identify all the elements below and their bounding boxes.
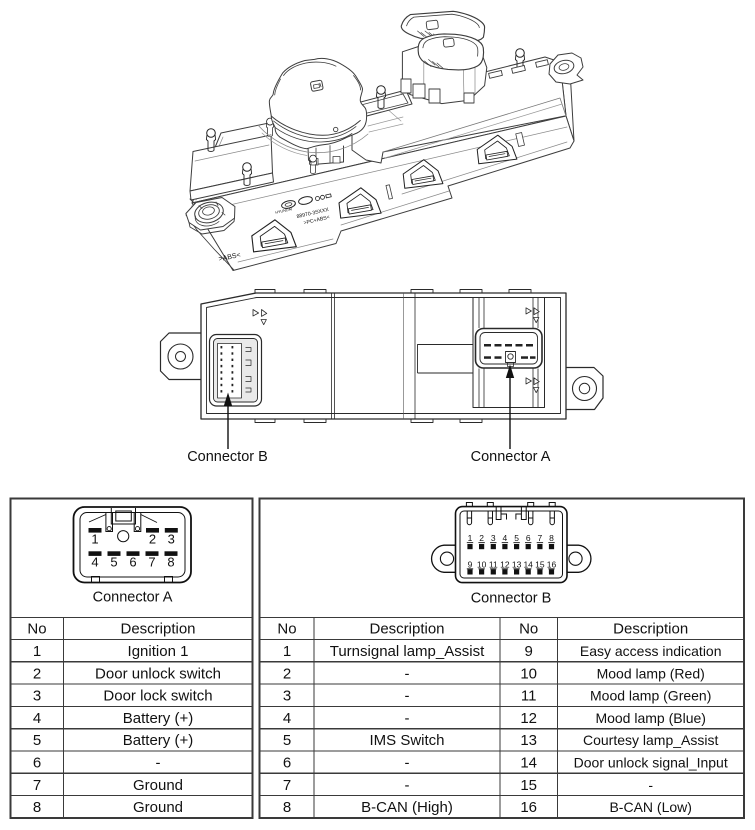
svg-text:Mood lamp (Red): Mood lamp (Red) (597, 665, 705, 681)
svg-text:10: 10 (520, 665, 537, 682)
svg-text:-: - (156, 755, 161, 772)
svg-text:13: 13 (520, 732, 537, 749)
svg-text:11: 11 (489, 560, 498, 570)
svg-text:8: 8 (167, 555, 174, 570)
svg-text:Connector B: Connector B (471, 591, 552, 607)
svg-text:Connector A: Connector A (471, 449, 551, 465)
svg-text:No: No (277, 621, 296, 638)
svg-text:4: 4 (33, 710, 41, 727)
svg-text:-: - (405, 688, 410, 705)
svg-text:Door unlock switch: Door unlock switch (95, 665, 221, 682)
svg-text:15: 15 (520, 777, 537, 794)
svg-text:6: 6 (129, 555, 136, 570)
svg-text:5: 5 (33, 732, 41, 749)
svg-text:4: 4 (283, 710, 291, 727)
svg-text:12: 12 (520, 710, 537, 727)
svg-text:14: 14 (523, 560, 533, 570)
svg-text:-: - (405, 710, 410, 727)
svg-text:9: 9 (525, 643, 533, 660)
svg-text:2: 2 (283, 665, 291, 682)
svg-text:6: 6 (33, 755, 41, 772)
svg-text:1: 1 (283, 643, 291, 660)
svg-text:Door unlock signal_Input: Door unlock signal_Input (574, 755, 728, 771)
svg-text:Connector B: Connector B (187, 449, 268, 465)
svg-text:Easy access indication: Easy access indication (580, 643, 722, 659)
svg-text:B-CAN (High): B-CAN (High) (361, 799, 453, 816)
svg-text:Connector A: Connector A (93, 590, 173, 606)
svg-text:-: - (405, 755, 410, 772)
svg-text:8: 8 (283, 799, 291, 816)
svg-text:6: 6 (526, 533, 531, 543)
svg-text:B-CAN (Low): B-CAN (Low) (609, 799, 691, 815)
svg-text:Ignition 1: Ignition 1 (128, 643, 189, 660)
svg-text:Door lock switch: Door lock switch (103, 688, 212, 705)
svg-text:Description: Description (120, 621, 195, 638)
svg-text:Description: Description (369, 621, 444, 638)
svg-text:Battery (+): Battery (+) (123, 732, 193, 749)
svg-text:7: 7 (538, 533, 543, 543)
svg-text:4: 4 (503, 533, 508, 543)
svg-text:16: 16 (520, 799, 537, 816)
svg-text:5: 5 (514, 533, 519, 543)
svg-text:1: 1 (91, 532, 98, 547)
svg-text:12: 12 (500, 560, 510, 570)
svg-text:13: 13 (512, 560, 522, 570)
svg-text:7: 7 (148, 555, 155, 570)
svg-text:4: 4 (91, 555, 98, 570)
svg-text:Mood lamp (Blue): Mood lamp (Blue) (595, 710, 706, 726)
svg-text:Battery (+): Battery (+) (123, 710, 193, 727)
svg-text:-: - (405, 665, 410, 682)
svg-text:Courtesy lamp_Assist: Courtesy lamp_Assist (583, 732, 718, 748)
svg-text:9: 9 (468, 560, 473, 570)
svg-text:IMS Switch: IMS Switch (369, 732, 444, 749)
svg-text:3: 3 (168, 532, 175, 547)
svg-text:Ground: Ground (133, 777, 183, 794)
svg-text:3: 3 (491, 533, 496, 543)
svg-text:10: 10 (477, 560, 487, 570)
svg-text:3: 3 (283, 688, 291, 705)
svg-text:11: 11 (521, 688, 537, 705)
svg-text:16: 16 (547, 560, 557, 570)
svg-text:8: 8 (549, 533, 554, 543)
svg-text:Turnsignal lamp_Assist: Turnsignal lamp_Assist (330, 643, 485, 660)
svg-text:14: 14 (520, 755, 537, 772)
svg-text:-: - (648, 777, 653, 793)
svg-text:7: 7 (33, 777, 41, 794)
svg-text:No: No (519, 621, 538, 638)
svg-text:5: 5 (110, 555, 117, 570)
svg-text:Mood lamp (Green): Mood lamp (Green) (590, 688, 711, 704)
svg-text:2: 2 (479, 533, 484, 543)
svg-text:8: 8 (33, 799, 41, 816)
svg-text:-: - (405, 777, 410, 794)
svg-text:2: 2 (149, 532, 156, 547)
svg-text:5: 5 (283, 732, 291, 749)
svg-text:15: 15 (535, 560, 545, 570)
svg-text:7: 7 (283, 777, 291, 794)
svg-text:No: No (27, 621, 46, 638)
svg-text:Ground: Ground (133, 799, 183, 816)
svg-text:6: 6 (283, 755, 291, 772)
svg-text:Description: Description (613, 621, 688, 638)
svg-text:2: 2 (33, 665, 41, 682)
svg-text:1: 1 (33, 643, 41, 660)
svg-text:3: 3 (33, 688, 41, 705)
svg-text:1: 1 (468, 533, 473, 543)
